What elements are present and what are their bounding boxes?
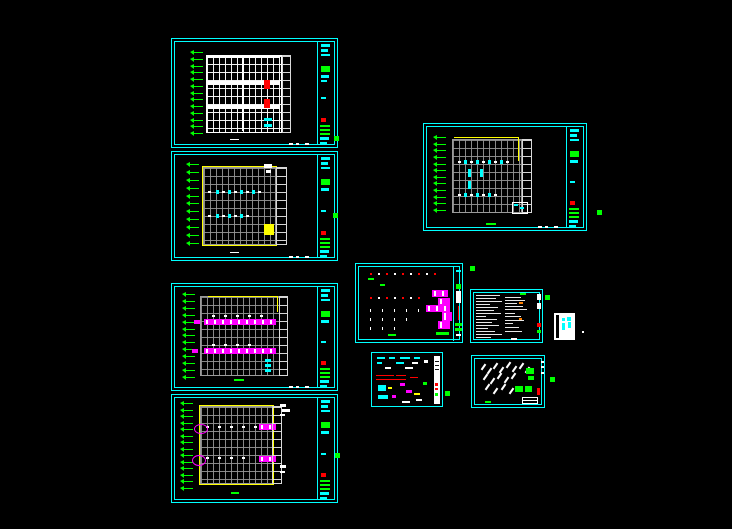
scale-tick bbox=[289, 386, 293, 388]
grid-axis-arrow-icon bbox=[437, 177, 446, 178]
scale-tick bbox=[296, 256, 299, 258]
green-highlight-block[interactable] bbox=[526, 368, 534, 374]
grid-axis-arrow-icon bbox=[184, 436, 193, 437]
cyan-tag[interactable] bbox=[240, 190, 243, 194]
grid-axis-arrow-icon bbox=[190, 243, 199, 244]
grid-axis-arrow-icon bbox=[184, 429, 193, 430]
cyan-tag[interactable] bbox=[464, 193, 467, 197]
cyan-tag[interactable] bbox=[476, 160, 479, 164]
cyan-highlight-bar[interactable] bbox=[264, 118, 272, 121]
cyan-tag[interactable] bbox=[228, 190, 231, 194]
grid-axis-arrow-icon bbox=[190, 227, 199, 228]
grid-axis-arrow-icon bbox=[184, 416, 193, 417]
scale-tick bbox=[289, 256, 293, 258]
cyan-tag[interactable] bbox=[216, 190, 219, 194]
title-block bbox=[317, 155, 334, 257]
green-node-marker[interactable] bbox=[333, 213, 338, 218]
title-block-stamp bbox=[321, 179, 330, 185]
grid-axis-arrow-icon bbox=[437, 164, 446, 165]
stray-dot bbox=[582, 331, 584, 333]
grid-axis-arrow-icon bbox=[194, 113, 203, 114]
green-node-marker[interactable] bbox=[597, 210, 602, 215]
cyan-tag[interactable] bbox=[488, 193, 491, 197]
grid-axis-arrow-icon bbox=[437, 190, 446, 191]
title-block bbox=[317, 42, 334, 144]
title-strip bbox=[434, 356, 440, 404]
green-highlight-bar[interactable] bbox=[436, 332, 449, 335]
orange-note-mark bbox=[519, 318, 522, 320]
grid-axis-arrow-icon bbox=[437, 197, 446, 198]
scale-tick bbox=[305, 143, 309, 145]
grid-axis-arrow-icon bbox=[194, 86, 203, 87]
structural-grid bbox=[200, 406, 273, 484]
cyan-highlight-bar[interactable] bbox=[264, 124, 272, 127]
grid-axis-arrow-icon bbox=[184, 442, 193, 443]
grid-axis-arrow-icon bbox=[437, 170, 446, 171]
cyan-column-tag[interactable] bbox=[468, 181, 471, 189]
green-node-marker[interactable] bbox=[550, 377, 555, 382]
green-node-marker[interactable] bbox=[334, 136, 339, 141]
grid-axis-arrow-icon bbox=[186, 342, 195, 343]
green-node-marker[interactable] bbox=[445, 391, 450, 396]
grid-axis-arrow-icon bbox=[184, 455, 193, 456]
edge-cell-column bbox=[282, 55, 291, 133]
grid-heavy-column bbox=[242, 55, 244, 131]
grid-axis-arrow-icon bbox=[190, 219, 199, 220]
scale-tick bbox=[289, 143, 293, 145]
magenta-chain-segment[interactable] bbox=[432, 290, 448, 297]
grid-axis-arrow-icon bbox=[190, 188, 199, 189]
grid-axis-arrow-icon bbox=[186, 363, 195, 364]
yellow-outline-top bbox=[454, 137, 518, 138]
drawing-sheet-5[interactable] bbox=[423, 123, 587, 231]
magenta-chain-segment[interactable] bbox=[442, 312, 452, 321]
axis-arrow-column bbox=[186, 294, 196, 378]
grid-axis-arrow-icon bbox=[194, 99, 203, 100]
grid-axis-arrow-icon bbox=[437, 137, 446, 138]
drawing-sheet-4[interactable] bbox=[171, 394, 338, 503]
axis-arrow-column bbox=[194, 52, 204, 134]
plan-caption-mark bbox=[230, 252, 239, 253]
scale-tick bbox=[305, 386, 309, 388]
cyan-tag[interactable] bbox=[500, 160, 503, 164]
grid-axis-arrow-icon bbox=[194, 52, 203, 53]
grid-axis-arrow-icon bbox=[437, 210, 446, 211]
magenta-revision-cloud[interactable] bbox=[192, 455, 206, 466]
grid-axis-arrow-icon bbox=[186, 377, 195, 378]
magenta-revision-cloud[interactable] bbox=[194, 424, 208, 434]
drawing-sheet-2[interactable] bbox=[171, 151, 338, 261]
grid-axis-arrow-icon bbox=[194, 59, 203, 60]
grid-axis-arrow-icon bbox=[437, 157, 446, 158]
grid-axis-arrow-icon bbox=[437, 203, 446, 204]
axis-arrow-column bbox=[190, 164, 200, 244]
drawing-sheet-8[interactable] bbox=[470, 289, 543, 343]
green-note-mark bbox=[520, 293, 526, 295]
scale-tick bbox=[538, 226, 542, 228]
grid-axis-arrow-icon bbox=[186, 335, 195, 336]
edge-cell-column bbox=[276, 167, 287, 245]
grid-axis-arrow-icon bbox=[186, 315, 195, 316]
grid-axis-arrow-icon bbox=[190, 211, 199, 212]
yellow-outline-top bbox=[208, 296, 278, 297]
grid-axis-arrow-icon bbox=[186, 356, 195, 357]
grid-axis-arrow-icon bbox=[194, 79, 203, 80]
grid-axis-arrow-icon bbox=[194, 126, 203, 127]
magenta-chain-segment[interactable] bbox=[426, 305, 450, 312]
plan-caption-mark bbox=[486, 223, 496, 225]
green-node-marker[interactable] bbox=[470, 266, 475, 271]
grid-axis-arrow-icon bbox=[186, 301, 195, 302]
grid-axis-arrow-icon bbox=[437, 144, 446, 145]
title-block bbox=[566, 127, 583, 227]
cyan-tag[interactable] bbox=[464, 160, 467, 164]
cyan-tag[interactable] bbox=[252, 190, 255, 194]
magenta-beam-band[interactable] bbox=[204, 348, 276, 354]
cyan-column-tag[interactable] bbox=[468, 169, 471, 177]
scale-tick bbox=[554, 226, 558, 228]
grid-axis-arrow-icon bbox=[190, 235, 199, 236]
grid-axis-arrow-icon bbox=[437, 183, 446, 184]
grid-axis-arrow-icon bbox=[190, 164, 199, 165]
yellow-outline-right bbox=[277, 296, 278, 312]
yellow-outline-right bbox=[518, 137, 519, 161]
plan-caption-mark bbox=[231, 492, 239, 494]
title-block bbox=[317, 398, 334, 499]
grid-axis-arrow-icon bbox=[186, 370, 195, 371]
title-block-stamp bbox=[570, 151, 579, 157]
grid-axis-arrow-icon bbox=[184, 449, 193, 450]
title-block-stamp bbox=[321, 311, 330, 317]
grid-axis-arrow-icon bbox=[194, 72, 203, 73]
plan-caption-mark bbox=[234, 379, 244, 381]
grid-axis-arrow-icon bbox=[186, 294, 195, 295]
green-highlight-bar[interactable] bbox=[388, 334, 396, 336]
green-node-marker[interactable] bbox=[335, 453, 340, 458]
green-node-marker[interactable] bbox=[545, 295, 550, 300]
structural-grid bbox=[206, 55, 282, 133]
cyan-tag[interactable] bbox=[488, 160, 491, 164]
grid-axis-arrow-icon bbox=[184, 423, 193, 424]
green-highlight-block[interactable] bbox=[528, 376, 534, 380]
grid-axis-arrow-icon bbox=[194, 120, 203, 121]
grid-axis-arrow-icon bbox=[190, 180, 199, 181]
title-block bbox=[317, 287, 334, 387]
orange-note-mark bbox=[519, 302, 523, 304]
grid-axis-arrow-icon bbox=[194, 133, 203, 134]
cyan-tag[interactable] bbox=[476, 193, 479, 197]
caption-mark bbox=[485, 401, 491, 403]
red-highlight-cell[interactable] bbox=[264, 80, 270, 89]
grid-axis-arrow-icon bbox=[186, 308, 195, 309]
grid-axis-arrow-icon bbox=[190, 203, 199, 204]
drawing-sheet-7[interactable] bbox=[371, 352, 443, 407]
scale-tick bbox=[545, 226, 548, 228]
grid-axis-arrow-icon bbox=[194, 106, 203, 107]
title-block-stamp bbox=[321, 66, 330, 72]
grid-axis-arrow-icon bbox=[194, 93, 203, 94]
axis-arrow-column bbox=[184, 403, 194, 489]
cad-model-space[interactable] bbox=[0, 0, 732, 529]
grid-axis-arrow-icon bbox=[184, 468, 193, 469]
cyan-tag[interactable] bbox=[228, 214, 231, 218]
scale-tick bbox=[296, 143, 299, 145]
magenta-beam-band[interactable] bbox=[204, 319, 276, 325]
title-strip-divider bbox=[453, 267, 454, 341]
drawing-sheet-6[interactable] bbox=[355, 263, 463, 343]
legend-card[interactable] bbox=[554, 313, 575, 340]
grid-axis-arrow-icon bbox=[184, 475, 193, 476]
red-highlight-cell[interactable] bbox=[264, 99, 270, 108]
red-mark bbox=[537, 388, 540, 395]
green-highlight-block[interactable] bbox=[515, 386, 523, 392]
grid-axis-arrow-icon bbox=[184, 403, 193, 404]
magenta-chain-segment[interactable] bbox=[438, 298, 450, 305]
grid-axis-arrow-icon bbox=[194, 66, 203, 67]
grid-axis-arrow-icon bbox=[437, 150, 446, 151]
plan-caption-mark bbox=[230, 139, 239, 140]
cyan-tag[interactable] bbox=[216, 214, 219, 218]
grid-axis-arrow-icon bbox=[190, 196, 199, 197]
axis-arrow-column bbox=[437, 137, 447, 211]
grid-axis-arrow-icon bbox=[190, 172, 199, 173]
title-block-stamp bbox=[321, 422, 330, 428]
cyan-tag[interactable] bbox=[240, 214, 243, 218]
edge-cell-column bbox=[279, 296, 288, 376]
grid-axis-arrow-icon bbox=[184, 481, 193, 482]
grid-axis-arrow-icon bbox=[184, 410, 193, 411]
grid-axis-arrow-icon bbox=[186, 329, 195, 330]
yellow-highlight-block[interactable] bbox=[264, 224, 274, 235]
cyan-column-tag[interactable] bbox=[480, 169, 483, 177]
drawing-sheet-9[interactable] bbox=[471, 355, 545, 408]
green-highlight-block[interactable] bbox=[525, 386, 532, 392]
scale-tick bbox=[296, 386, 299, 388]
grid-axis-arrow-icon bbox=[184, 488, 193, 489]
drawing-sheet-1[interactable] bbox=[171, 38, 338, 148]
drawing-sheet-3[interactable] bbox=[171, 283, 338, 391]
scale-tick bbox=[305, 256, 309, 258]
magenta-chain-segment[interactable] bbox=[438, 321, 450, 329]
